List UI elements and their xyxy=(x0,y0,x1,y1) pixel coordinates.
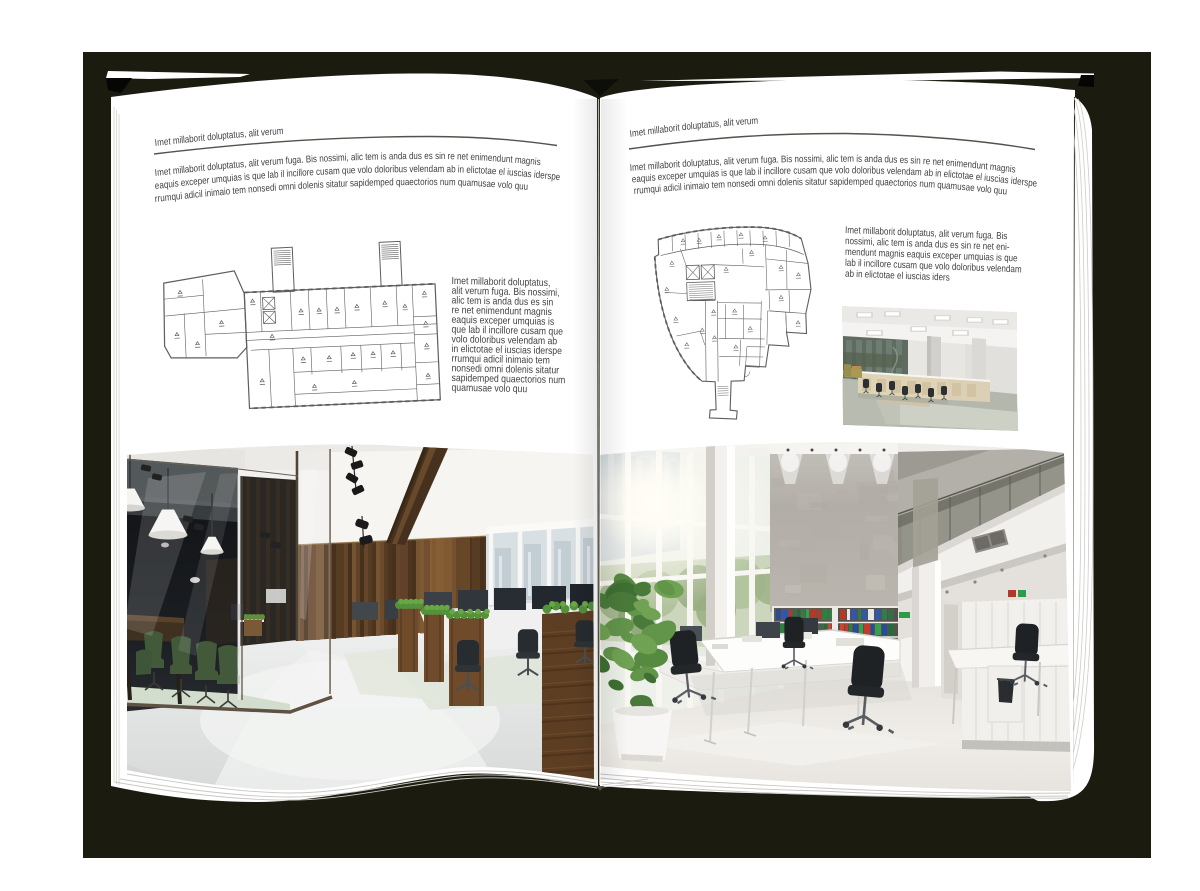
svg-text:quamusae volo quu: quamusae volo quu xyxy=(451,382,527,395)
